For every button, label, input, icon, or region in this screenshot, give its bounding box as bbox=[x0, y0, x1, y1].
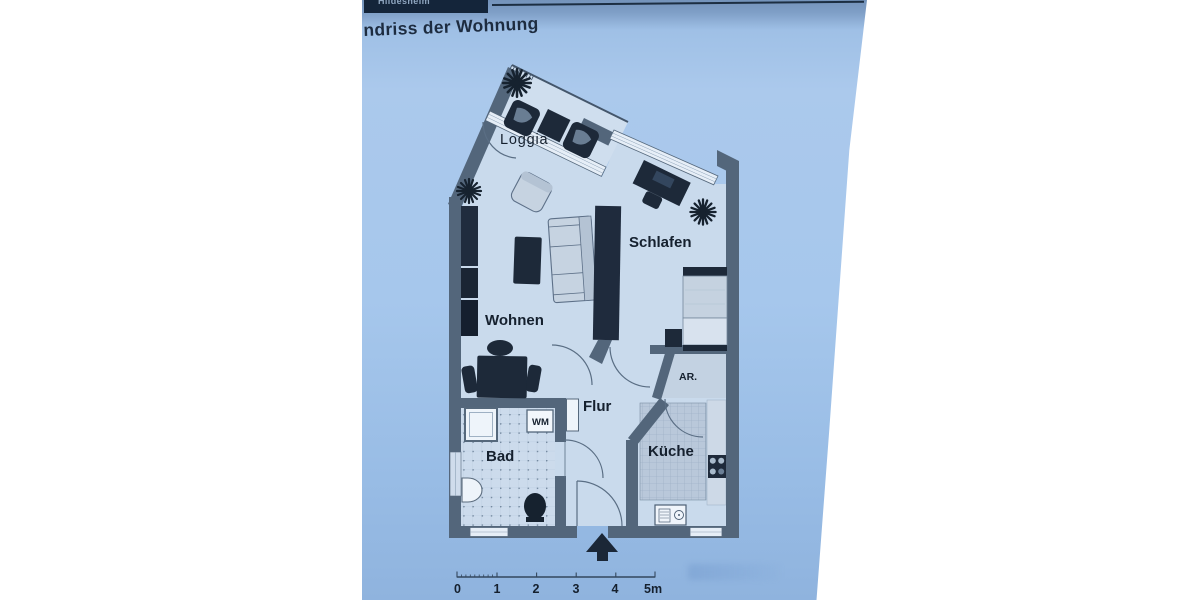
toilet bbox=[524, 493, 546, 522]
flur-cupboard bbox=[567, 399, 579, 431]
wall-bottom-left bbox=[449, 526, 577, 538]
sofa bbox=[548, 216, 597, 303]
document-photo: Hildesheim ndriss der Wohnung bbox=[362, 0, 867, 600]
label-kueche: Küche bbox=[648, 443, 694, 460]
wall-bad-right-lower bbox=[555, 476, 566, 526]
wall-right bbox=[726, 163, 739, 538]
floorplan-drawing: WM bbox=[362, 0, 867, 600]
scale-tick-0: 0 bbox=[454, 582, 461, 596]
nightstand bbox=[665, 329, 682, 347]
plant-icon-schlafen bbox=[690, 199, 715, 224]
scale-tick-5m: 5m bbox=[644, 582, 662, 596]
dining-table bbox=[477, 356, 528, 399]
scale-tick-4: 4 bbox=[612, 582, 619, 596]
plant-icon-wohnen bbox=[457, 179, 481, 203]
wall-kitchen-left bbox=[626, 440, 638, 526]
dining-chair-top bbox=[487, 340, 513, 356]
wall-bad-right-upper bbox=[555, 398, 566, 442]
bed bbox=[683, 267, 727, 351]
scale-tick-3: 3 bbox=[573, 582, 580, 596]
label-flur: Flur bbox=[583, 398, 611, 415]
kitchen-sink bbox=[655, 505, 686, 525]
washing-machine-label: WM bbox=[532, 417, 549, 428]
plant-icon-loggia bbox=[503, 69, 531, 97]
kitchen-counter-right bbox=[707, 400, 726, 505]
label-abstellraum: AR. bbox=[679, 371, 697, 383]
screenshot-canvas: Hildesheim ndriss der Wohnung bbox=[0, 0, 1200, 600]
scale-tick-1: 1 bbox=[494, 582, 501, 596]
stove bbox=[708, 455, 726, 478]
label-loggia: Loggia bbox=[500, 132, 548, 148]
scale-tick-2: 2 bbox=[533, 582, 540, 596]
coffee-table bbox=[513, 237, 542, 285]
window-kitchen bbox=[690, 528, 722, 537]
label-wohnen: Wohnen bbox=[485, 312, 544, 329]
window-bad bbox=[470, 528, 508, 537]
label-bad: Bad bbox=[486, 448, 514, 465]
washing-machine: WM bbox=[527, 410, 553, 432]
shower bbox=[465, 408, 497, 441]
sideboard bbox=[461, 206, 478, 336]
scale-bar: 0 1 2 3 4 5m bbox=[454, 572, 662, 597]
show-through-text bbox=[688, 564, 780, 580]
label-schlafen: Schlafen bbox=[629, 234, 692, 251]
wardrobe-divider bbox=[593, 206, 621, 340]
window-bad-left bbox=[450, 452, 461, 496]
wall-bad-top bbox=[450, 398, 566, 408]
